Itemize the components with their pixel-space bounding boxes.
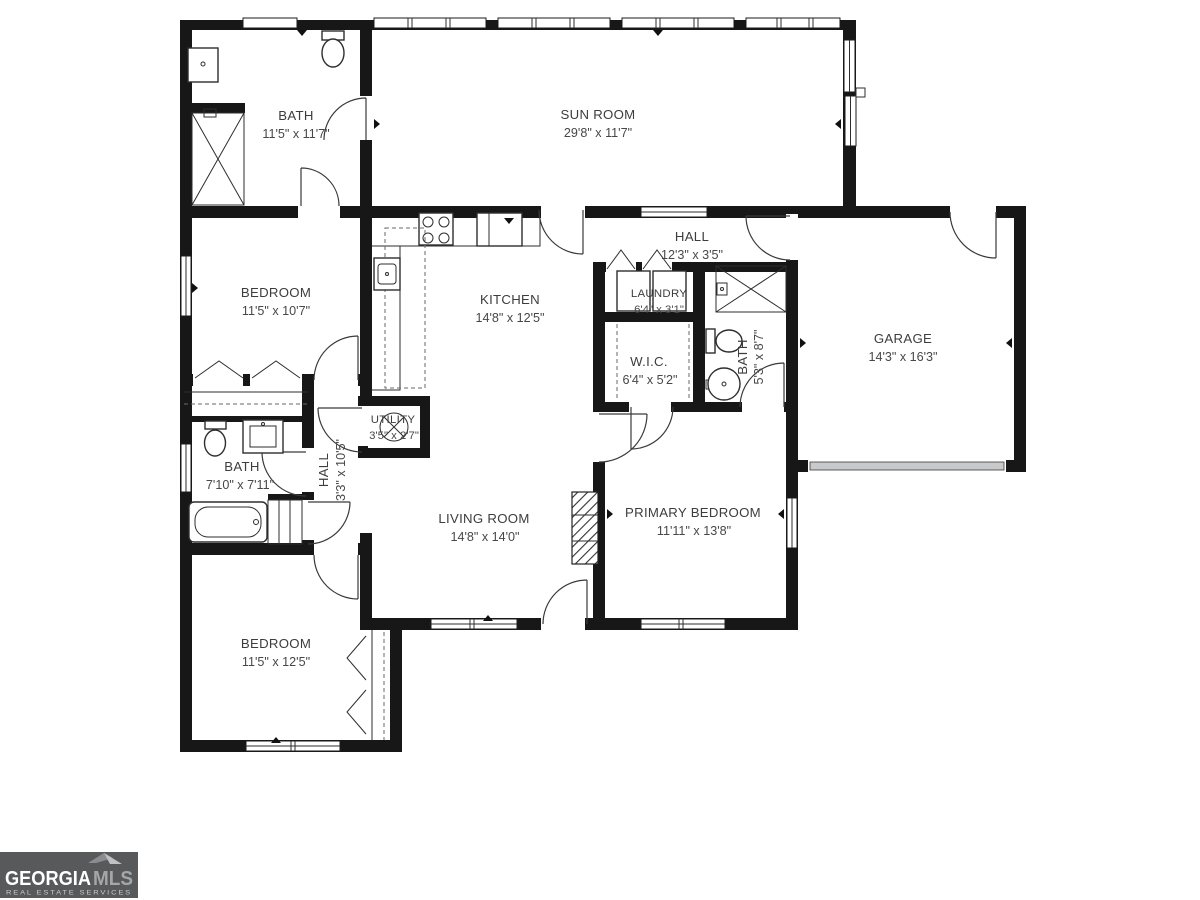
room-label-bedroom-mid: BEDROOM	[241, 285, 311, 300]
georgia-mls-logo: GEORGIA MLS REAL ESTATE SERVICES	[0, 852, 138, 898]
room-label-bath-right: BATH	[735, 339, 750, 374]
fireplace-icon	[572, 492, 598, 564]
room-label-garage: GARAGE	[874, 331, 932, 346]
vanity-sink-icon	[188, 48, 218, 82]
logo-text-mls: MLS	[93, 868, 133, 890]
room-label-bedroom-bottom: BEDROOM	[241, 636, 311, 651]
bathtub-icon	[189, 502, 267, 542]
room-dims-bath-right: 5'3" x 8'7"	[752, 329, 766, 384]
room-label-hall-top: HALL	[675, 229, 709, 244]
room-label-sun-room: SUN ROOM	[561, 107, 636, 122]
floor-plan-image: BATH 11'5" x 11'7" SUN ROOM 29'8" x 11'7…	[0, 0, 1200, 900]
room-dims-wic: 6'4" x 5'2"	[622, 373, 677, 387]
kitchen-sink-icon	[374, 258, 400, 290]
vanity-sink-icon-2	[243, 420, 283, 453]
room-labels: BATH 11'5" x 11'7" SUN ROOM 29'8" x 11'7…	[206, 107, 938, 669]
room-label-living-room: LIVING ROOM	[438, 511, 529, 526]
room-dims-kitchen: 14'8" x 12'5"	[475, 311, 544, 325]
room-dims-bedroom-bottom: 11'5" x 12'5"	[242, 655, 310, 669]
logo-text-georgia: GEORGIA	[5, 868, 91, 890]
room-dims-bath-top: 11'5" x 11'7"	[262, 127, 329, 141]
room-dims-primary-bedroom: 11'11" x 13'8"	[657, 524, 731, 538]
room-dims-hall-top: 12'3" x 3'5"	[661, 248, 723, 262]
toilet-icon-3	[205, 421, 227, 456]
room-label-bath-top: BATH	[278, 108, 313, 123]
exterior-step	[856, 88, 865, 97]
logo-tagline: REAL ESTATE SERVICES	[6, 890, 132, 897]
refrigerator-icon	[477, 213, 522, 246]
stove-icon	[419, 213, 453, 245]
room-dims-living-room: 14'8" x 14'0"	[450, 530, 519, 544]
room-dims-laundry: 6'4" x 3'1"	[634, 304, 684, 316]
room-label-hall-left: HALL	[316, 453, 331, 487]
toilet-icon	[322, 31, 344, 67]
room-label-utility: UTILITY	[371, 414, 416, 426]
shower-icon	[192, 109, 244, 205]
room-label-kitchen: KITCHEN	[480, 292, 540, 307]
room-dims-sun-room: 29'8" x 11'7"	[564, 126, 632, 140]
shower-icon-2	[716, 266, 786, 312]
room-label-primary-bedroom: PRIMARY BEDROOM	[625, 505, 761, 520]
room-dims-bath-left: 7'10" x 7'11"	[206, 478, 274, 492]
room-dims-garage: 14'3" x 16'3"	[868, 350, 937, 364]
room-dims-utility: 3'5" x 2'7"	[369, 430, 419, 442]
garage-door	[810, 462, 1004, 470]
room-label-laundry: LAUNDRY	[631, 288, 687, 300]
room-dims-bedroom-mid: 11'5" x 10'7"	[242, 304, 310, 318]
room-label-wic: W.I.C.	[630, 354, 668, 369]
room-label-bath-left: BATH	[224, 459, 259, 474]
room-dims-hall-left: 3'3" x 10'5"	[334, 439, 348, 501]
